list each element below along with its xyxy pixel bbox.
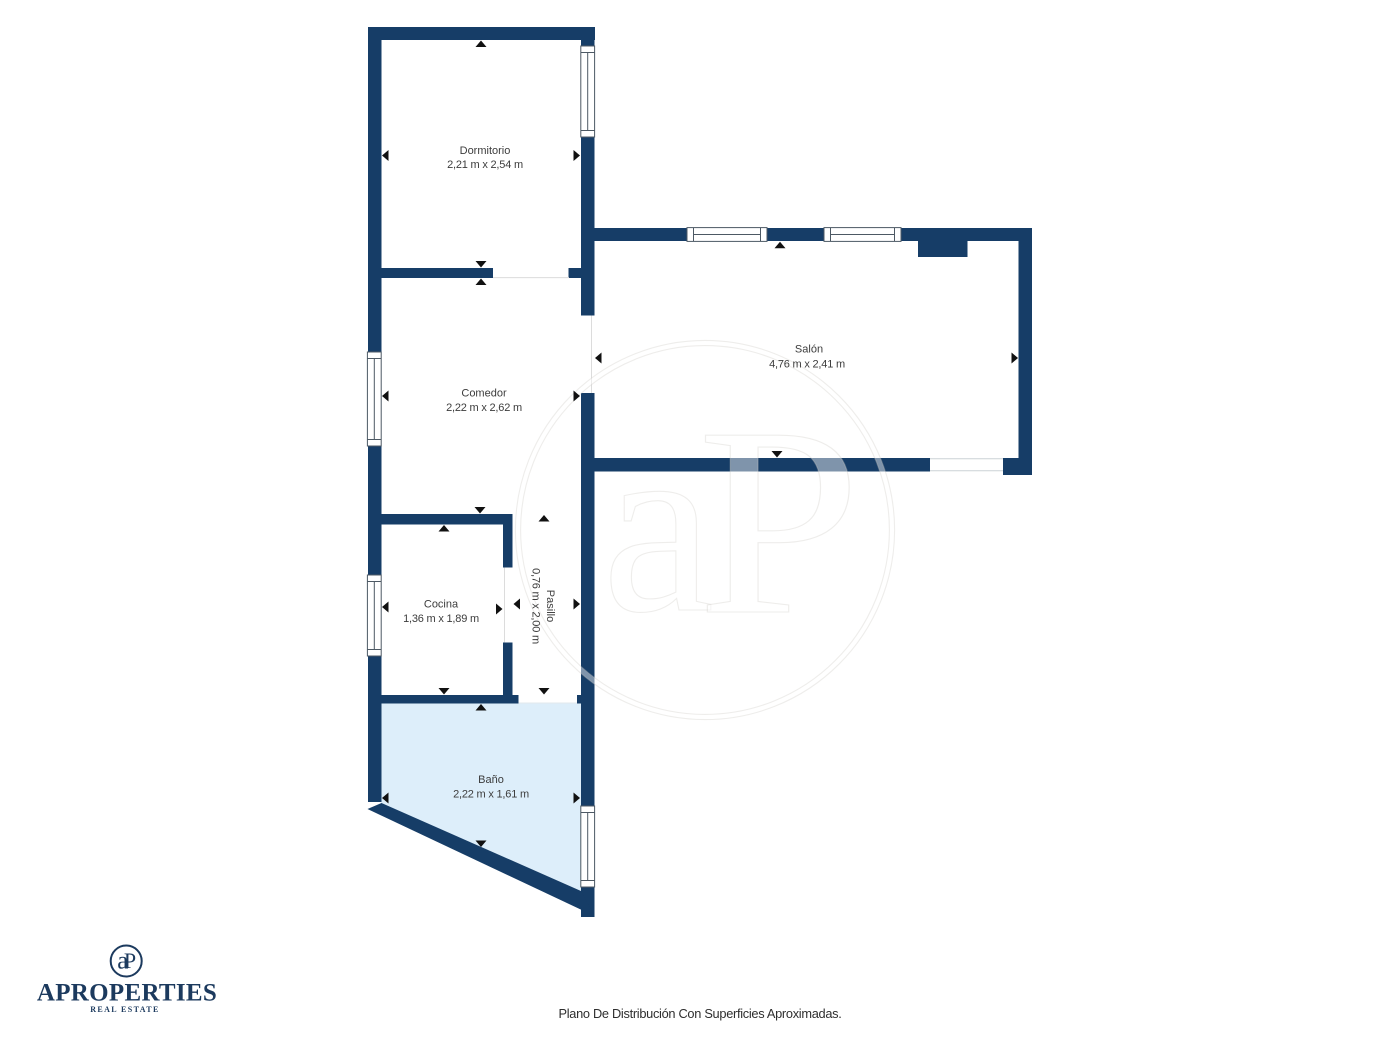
svg-text:Baño: Baño <box>478 774 504 786</box>
svg-text:REAL ESTATE: REAL ESTATE <box>90 1005 160 1014</box>
svg-text:1,36 m x 1,89 m: 1,36 m x 1,89 m <box>403 613 479 625</box>
svg-text:Comedor: Comedor <box>461 388 507 400</box>
svg-text:0,76 m x 2,00 m: 0,76 m x 2,00 m <box>530 568 542 644</box>
svg-text:Plano De Distribución Con Supe: Plano De Distribución Con Superficies Ap… <box>558 1006 841 1021</box>
svg-text:Pasillo: Pasillo <box>544 590 556 622</box>
svg-text:Dormitorio: Dormitorio <box>460 145 511 157</box>
svg-text:P: P <box>697 372 861 671</box>
svg-text:2,21 m x 2,54 m: 2,21 m x 2,54 m <box>447 159 523 171</box>
svg-text:4,76 m x 2,41 m: 4,76 m x 2,41 m <box>769 359 845 371</box>
svg-text:Cocina: Cocina <box>424 599 459 611</box>
svg-text:Salón: Salón <box>795 344 823 356</box>
svg-text:APROPERTIES: APROPERTIES <box>37 979 217 1006</box>
svg-text:P: P <box>124 948 136 973</box>
svg-text:2,22 m x 1,61 m: 2,22 m x 1,61 m <box>453 789 529 801</box>
svg-text:2,22 m x 2,62 m: 2,22 m x 2,62 m <box>446 402 522 414</box>
